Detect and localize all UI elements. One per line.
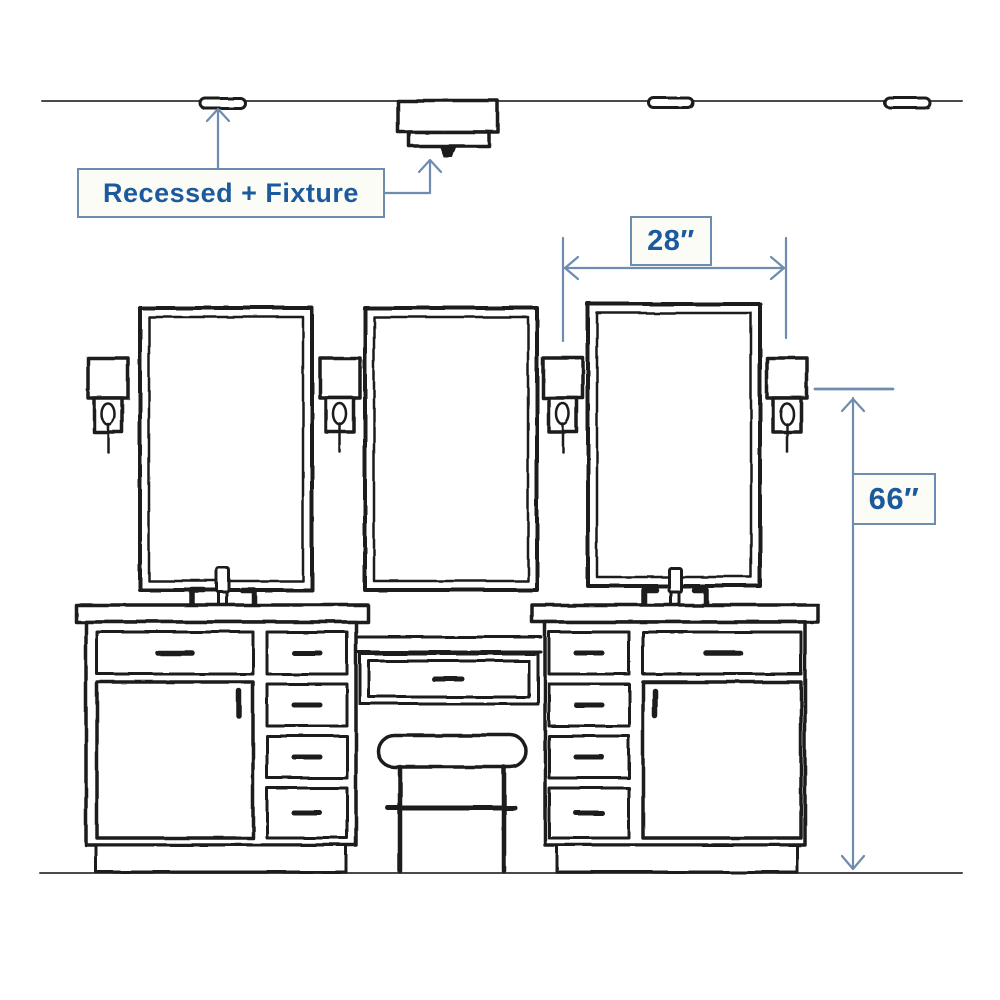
drawer-stack [267,632,347,838]
mirror-left [140,308,312,590]
mirror-center [365,308,537,590]
recessed-light-icon [885,98,930,108]
diagram-canvas: Recessed + Fixture 28″ 66″ [0,0,1000,1000]
line-art [0,0,1000,1000]
countertop [532,605,818,622]
ceiling-lights [200,98,930,157]
toe-kick [96,845,346,872]
vanity-right [532,568,818,872]
stool-seat [378,735,526,767]
dimension-66 [815,389,893,869]
height-dimension-label: 66″ [852,473,936,525]
mirrors [140,304,760,590]
sconce-icon [320,358,360,452]
sconce-icon [767,358,807,452]
toe-kick [557,845,797,872]
fixture-callout-label: Recessed + Fixture [77,168,385,218]
cabinet-door [643,682,801,838]
drawer-stack [549,632,629,838]
sconce-icon [88,358,128,452]
makeup-section [357,637,541,871]
sconce-icon [543,358,583,452]
width-dimension-label: 28″ [630,216,712,266]
recessed-light-icon [200,98,245,108]
cabinet-door [97,682,253,838]
width-dimension-text: 28″ [647,225,695,258]
vanity-left [76,568,368,872]
height-dimension-text: 66″ [869,481,920,517]
stool-icon [378,735,526,871]
recessed-light-icon [649,98,693,108]
countertop [76,605,368,622]
surface-fixture-icon [398,101,498,157]
mirror-right [588,304,760,586]
fixture-callout-text: Recessed + Fixture [103,178,359,209]
